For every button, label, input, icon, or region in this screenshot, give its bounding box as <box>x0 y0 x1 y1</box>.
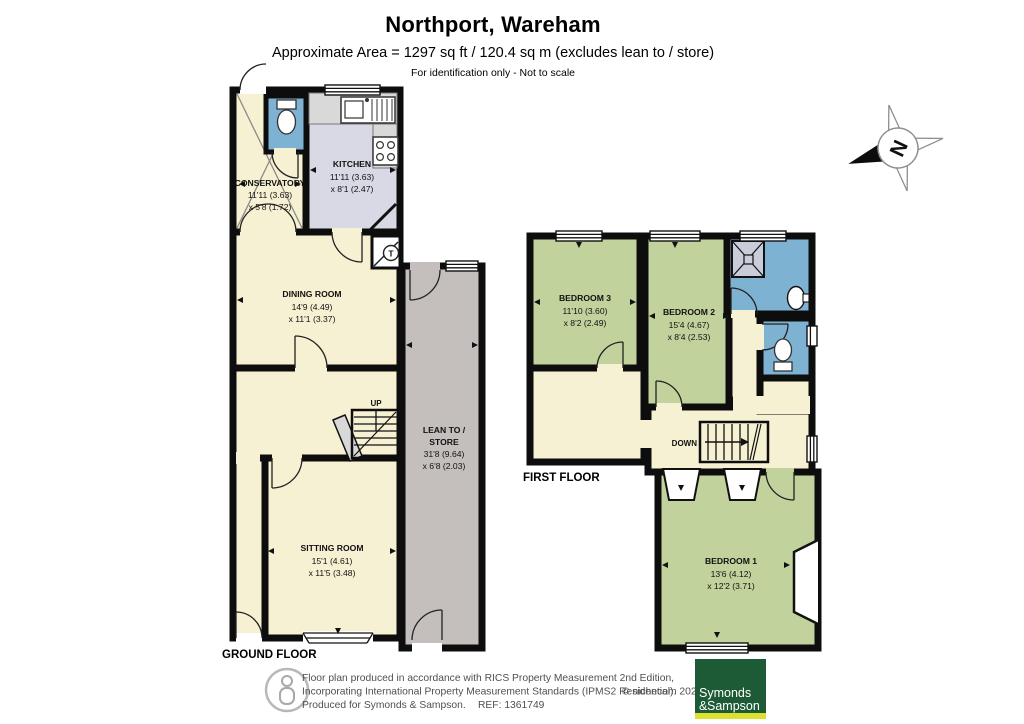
door-gap <box>240 228 296 236</box>
toilet-icon <box>774 339 792 371</box>
door-gap <box>236 452 260 464</box>
footer-line2: Incorporating International Property Mea… <box>302 687 676 698</box>
floorplan-svg: T UP <box>0 0 1024 724</box>
door-gap <box>766 468 794 476</box>
floorplan-page: Northport, Wareham Approximate Area = 12… <box>0 0 1024 724</box>
toilet-icon <box>277 100 296 134</box>
bedroom3-dim1: 11'10 (3.60) <box>563 306 608 316</box>
leanto-dim2: x 6'8 (2.03) <box>423 461 466 471</box>
tank-cupboard: T <box>372 236 400 268</box>
room-entrance-hall <box>233 458 265 638</box>
leanto-label1: LEAN TO / <box>423 425 466 435</box>
sitting-dim2: x 11'5 (3.48) <box>309 568 356 578</box>
leanto-label2: STORE <box>429 437 459 447</box>
door-gap <box>597 364 623 372</box>
conservatory-label: CONSERVATORY <box>235 178 306 188</box>
bedroom2-dim1: 15'4 (4.67) <box>669 320 710 330</box>
footer-line1: Floor plan produced in accordance with R… <box>302 673 674 684</box>
chimney-recess <box>794 540 818 624</box>
logo-line2: Sampson <box>707 699 760 713</box>
door-gap <box>295 364 327 372</box>
footer-copyright: © nichecom 2025. <box>622 687 705 698</box>
symonds-sampson-logo: Symonds & Sampson <box>695 659 766 719</box>
bedroom2-label: BEDROOM 2 <box>663 307 715 317</box>
kitchen-dim1: 11'11 (3.63) <box>330 172 374 182</box>
logo-line1: Symonds <box>699 686 751 700</box>
compass: N <box>840 95 952 201</box>
kitchen-dim2: x 8'1 (2.47) <box>331 184 374 194</box>
door-gap <box>272 454 302 462</box>
room-landing-left <box>530 368 644 462</box>
conservatory-dim2: x 5'8 (1.72) <box>249 202 292 212</box>
dining-dim1: 14'9 (4.49) <box>292 302 333 312</box>
door-gap <box>756 324 764 350</box>
door-gap <box>412 643 442 653</box>
door-gap <box>731 310 755 318</box>
door-gap <box>274 148 296 156</box>
sitting-dim1: 15'1 (4.61) <box>312 556 353 566</box>
sitting-label: SITTING ROOM <box>300 543 363 553</box>
hob-icon <box>373 137 398 165</box>
up-label: UP <box>370 399 382 408</box>
door-gap <box>656 403 682 411</box>
door-gap <box>332 228 362 236</box>
kitchen-label: KITCHEN <box>333 159 371 169</box>
shower-icon <box>732 241 764 277</box>
dining-dim2: x 11'1 (3.37) <box>289 314 336 324</box>
landing-doorway <box>640 420 654 448</box>
front-door-gap <box>236 633 262 643</box>
footer: Floor plan produced in accordance with R… <box>266 659 766 719</box>
bedroom3-label: BEDROOM 3 <box>559 293 611 303</box>
open-passage <box>733 396 810 414</box>
door-gap <box>410 262 440 270</box>
first-floor-plan: DOWN <box>523 231 818 653</box>
bedroom3-dim2: x 8'2 (2.49) <box>564 318 607 328</box>
dining-label: DINING ROOM <box>282 289 341 299</box>
sink-icon <box>341 97 395 123</box>
footer-ref: REF: 1361749 <box>478 700 545 711</box>
down-label: DOWN <box>672 439 698 448</box>
bedroom1-dim2: x 12'2 (3.71) <box>707 581 755 591</box>
ground-floor-label: GROUND FLOOR <box>222 649 317 661</box>
ground-floor-plan: T UP <box>222 64 482 661</box>
door-gap <box>240 86 266 94</box>
first-floor-label: FIRST FLOOR <box>523 472 600 484</box>
conservatory-dim1: 11'11 (3.63) <box>248 190 292 200</box>
bedroom2-dim2: x 8'4 (2.53) <box>668 332 711 342</box>
tank-label: T <box>388 249 394 259</box>
footer-line3: Produced for Symonds & Sampson. <box>302 700 466 711</box>
bedroom1-label: BEDROOM 1 <box>705 556 757 566</box>
leanto-dim1: 31'8 (9.64) <box>424 449 465 459</box>
bedroom1-dim1: 13'6 (4.12) <box>711 569 752 579</box>
